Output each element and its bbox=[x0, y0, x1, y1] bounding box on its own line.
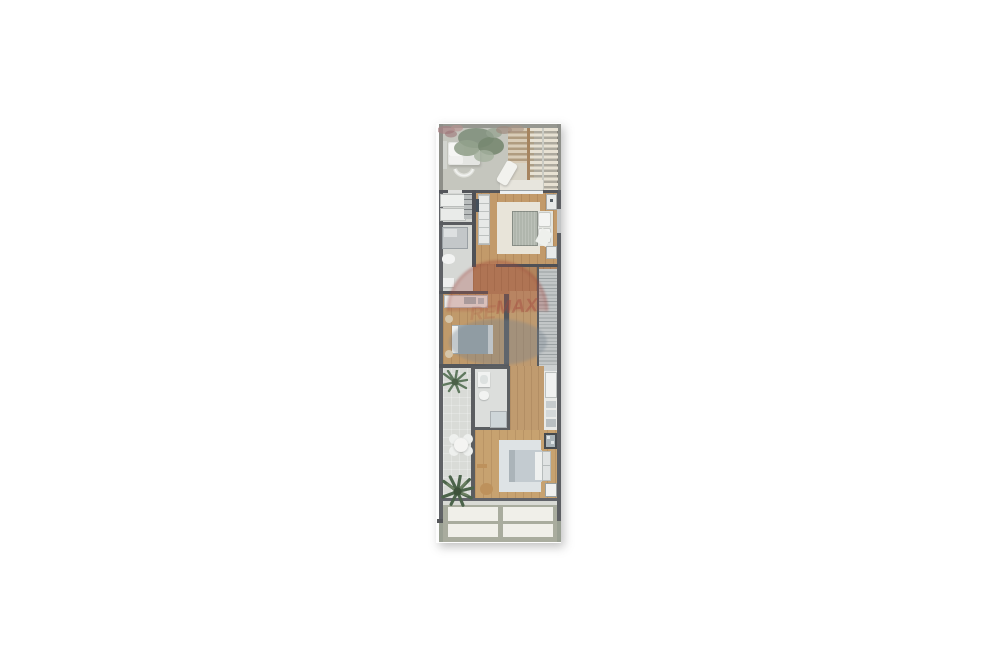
svg-text:RE: RE bbox=[469, 302, 498, 325]
svg-text:MAX: MAX bbox=[495, 295, 540, 319]
